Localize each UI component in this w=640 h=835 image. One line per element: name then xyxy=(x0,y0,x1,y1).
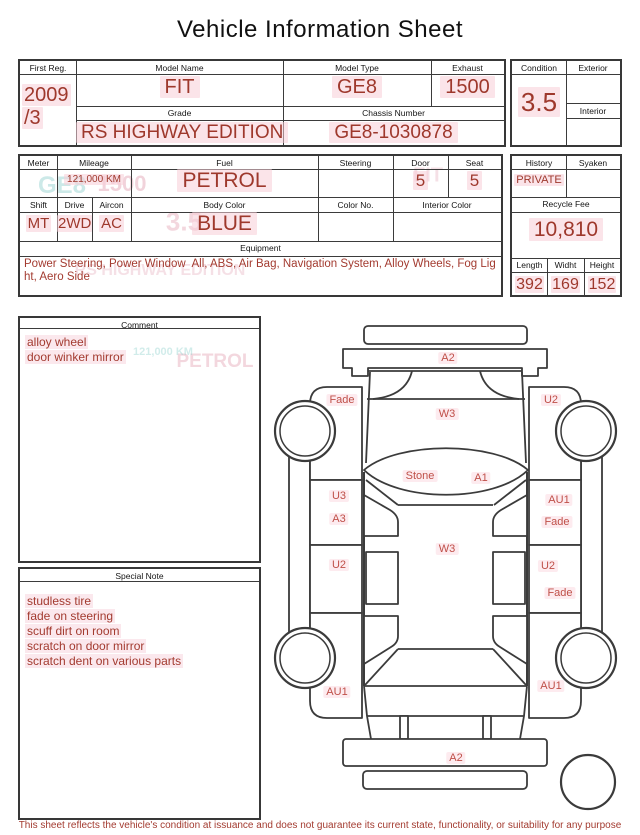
damage-label-right-door-fade: Fade xyxy=(541,516,572,528)
rear-hatch-outline xyxy=(364,686,527,739)
damage-label-rear-bumper: A2 xyxy=(446,752,465,764)
rear-left-wheel xyxy=(275,628,335,688)
left-quarter-window-shape xyxy=(364,616,398,664)
damage-label-stone: Stone xyxy=(403,470,438,482)
damage-label-left-front-fender: Fade xyxy=(326,394,357,406)
rear-right-wheel xyxy=(556,628,616,688)
headlight-arcs xyxy=(373,371,519,399)
right-rear-door-shape xyxy=(529,545,581,613)
left-rear-door-shape xyxy=(310,545,362,613)
damage-label-left-door-u3: U3 xyxy=(329,490,349,502)
right-front-door-shape xyxy=(529,480,581,545)
front-spoiler-shape xyxy=(364,326,527,344)
windshield-lens-shape xyxy=(364,448,528,495)
damage-label-left-door-a3: A3 xyxy=(329,513,348,525)
vehicle-information-sheet: GE8 1500 FIT 3.5 RS HIGHWAY EDITION PETR… xyxy=(0,0,640,835)
left-rear-window-shape xyxy=(366,552,398,604)
right-rear-window-shape xyxy=(493,552,525,604)
damage-label-right-rear-fender: AU1 xyxy=(537,680,564,692)
damage-label-right-rear-door-fade: Fade xyxy=(544,587,575,599)
damage-label-right-rear-door-u2: U2 xyxy=(538,560,558,572)
right-quarter-window-shape xyxy=(493,616,527,664)
damage-label-windshield: W3 xyxy=(436,408,459,420)
damage-label-right-front-fender: U2 xyxy=(541,394,561,406)
spare-wheel xyxy=(561,755,615,809)
damage-label-left-rear-fender: AU1 xyxy=(323,686,350,698)
rear-bumper-shape xyxy=(343,739,547,766)
front-right-wheel xyxy=(556,401,616,461)
rear-lower-panel-shape xyxy=(363,771,527,789)
damage-label-right-door-au1: AU1 xyxy=(545,494,572,506)
damage-label-a1: A1 xyxy=(471,472,490,484)
damage-label-left-rear-door: U2 xyxy=(329,559,349,571)
rear-hinge-left xyxy=(400,716,408,739)
right-sill-shape xyxy=(581,455,602,634)
left-sill-shape xyxy=(289,455,310,634)
front-left-wheel xyxy=(275,401,335,461)
damage-label-front-bumper: A2 xyxy=(438,352,457,364)
rear-hinge-right xyxy=(483,716,491,739)
damage-label-roof: W3 xyxy=(436,543,459,555)
c-pillar-lines xyxy=(365,649,526,685)
car-diagram xyxy=(0,0,640,835)
